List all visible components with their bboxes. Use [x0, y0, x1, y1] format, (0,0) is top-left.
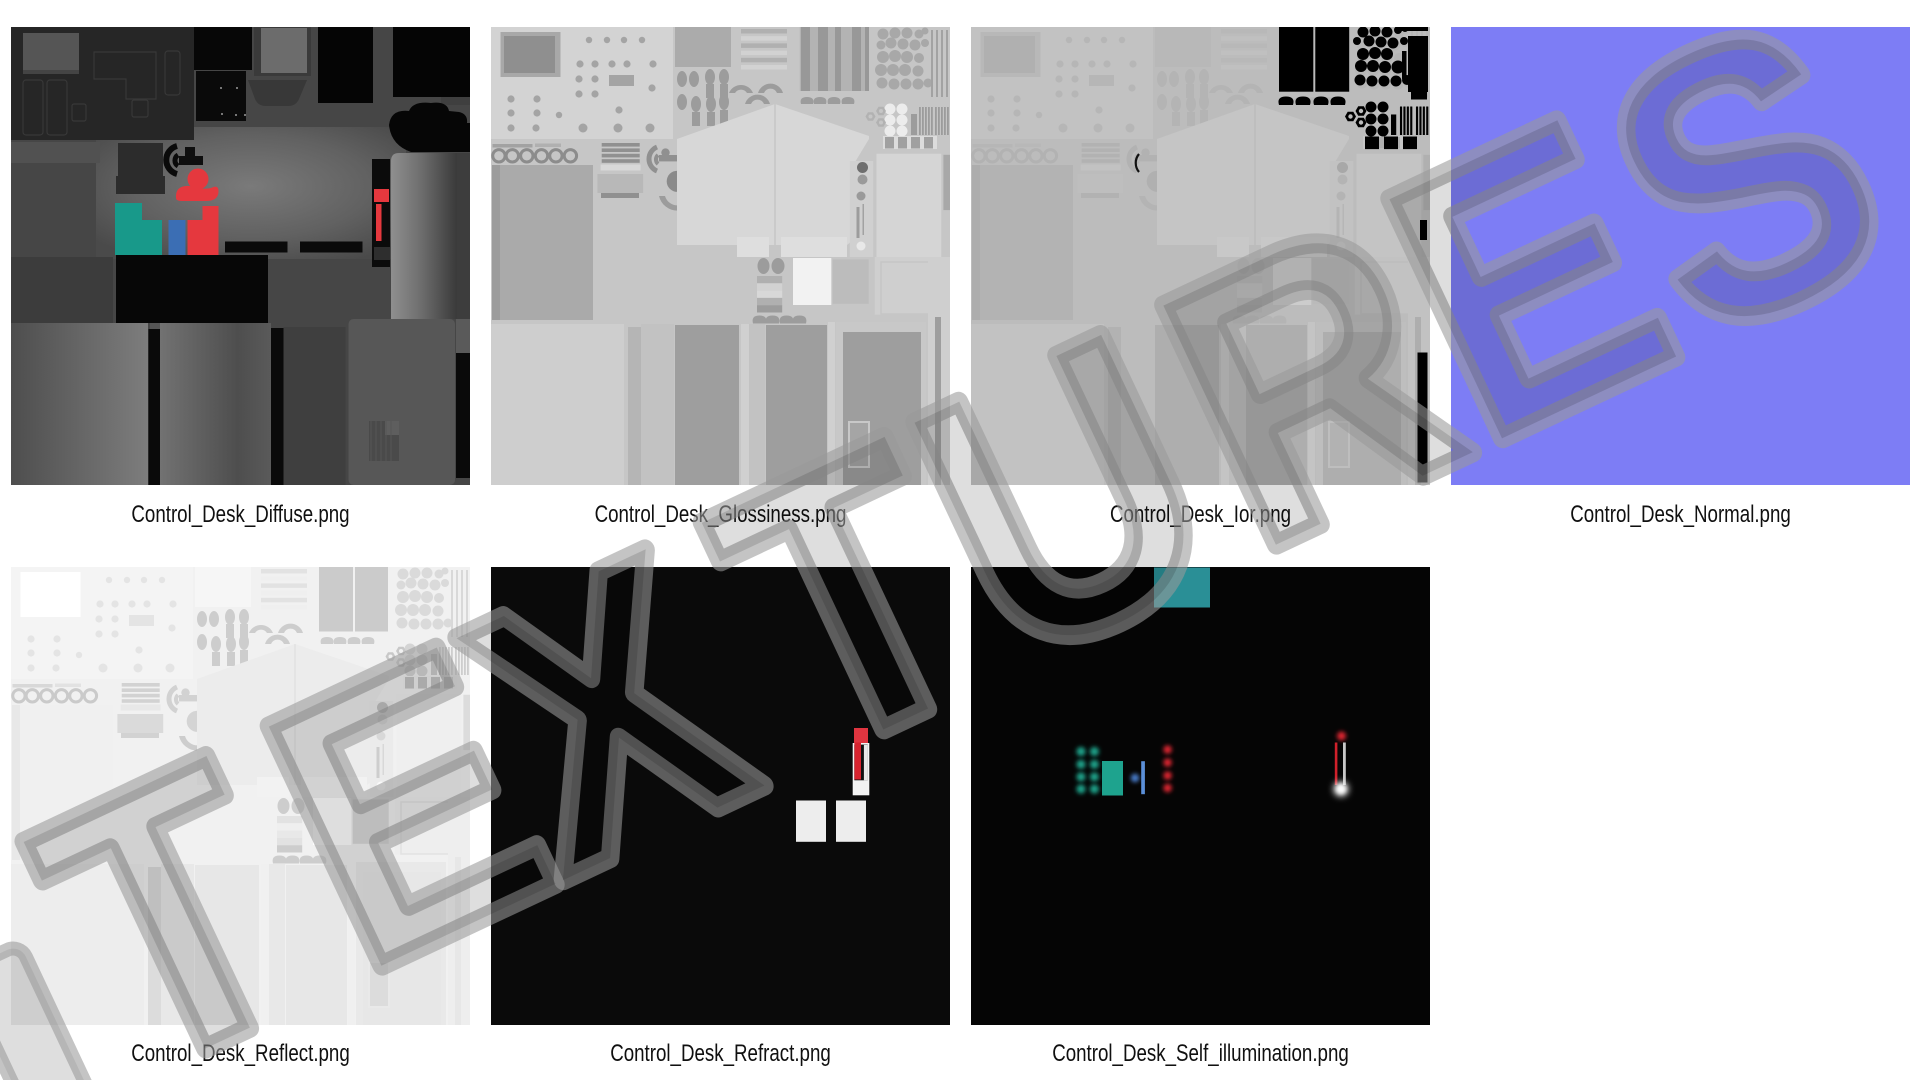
- svg-text:TEXTURES: TEXTURES: [0, 0, 1920, 1080]
